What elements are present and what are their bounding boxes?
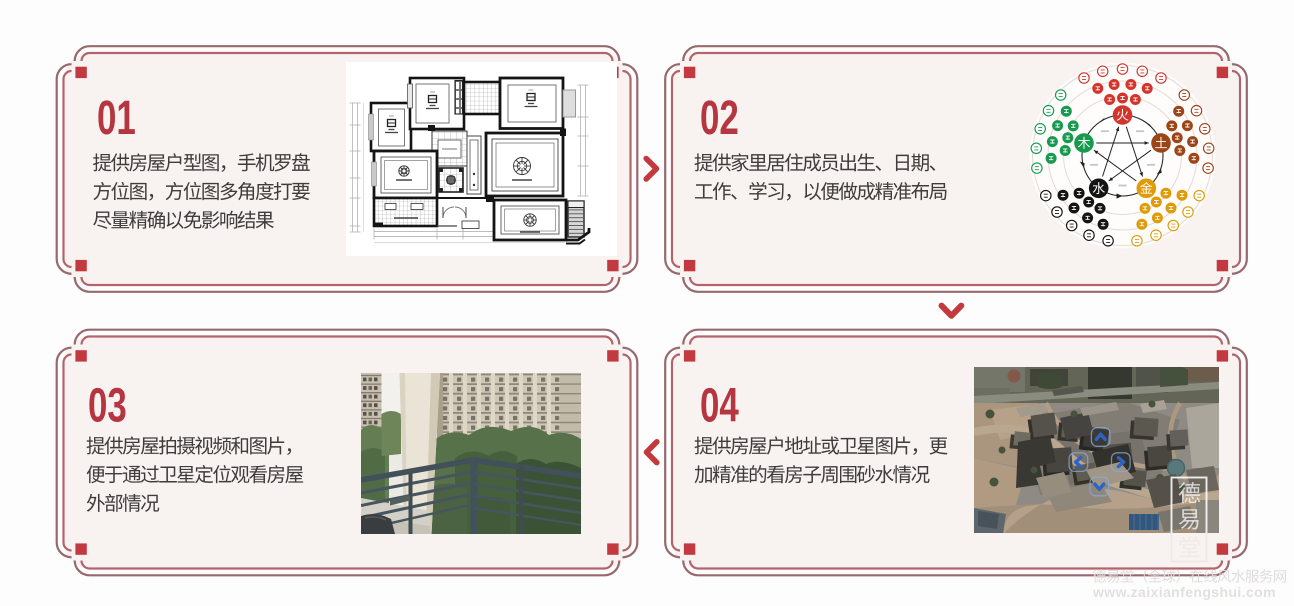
svg-text:01: 01 [97,90,136,144]
svg-text:04: 04 [700,378,739,432]
svg-text:02: 02 [700,90,739,144]
svg-text:03: 03 [88,378,127,432]
svg-text:www.zaixianfengshui.com: www.zaixianfengshui.com [1092,584,1276,600]
